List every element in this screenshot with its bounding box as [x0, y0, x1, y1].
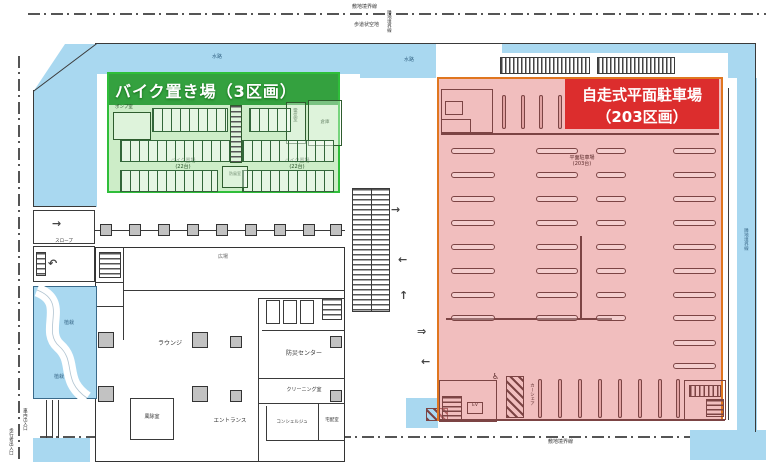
bike-rack — [242, 140, 334, 162]
parking-stall-line — [618, 379, 622, 418]
bike-rack — [120, 170, 218, 192]
traffic-arrow-icon: → — [391, 204, 400, 215]
pump-room-label: ポンプ室 — [115, 105, 133, 110]
parking-stall-bar — [536, 244, 578, 250]
parking-stall-bar — [536, 172, 578, 178]
parking-stall-bar — [536, 292, 578, 298]
bike-rack — [249, 108, 291, 132]
parking-stall-line — [521, 95, 525, 129]
parking-stall-bar — [673, 363, 716, 369]
traffic-arrow-icon: ← — [421, 356, 430, 367]
flat-parking-zone: 自走式平面駐車場 （203区画） 平面駐車場 (203台) EV カーシェア ♿ — [437, 77, 723, 421]
bike-zone-label: バイク置き場（3区画） — [115, 78, 297, 102]
parking-center-label: 平面駐車場 (203台) — [549, 155, 615, 167]
parking-wall — [441, 133, 719, 135]
parking-stall-bar — [673, 172, 716, 178]
parking-stall-bar — [673, 244, 716, 250]
bike-rack — [152, 108, 228, 132]
parking-stall-bar — [673, 220, 716, 226]
parking-stall-line — [638, 379, 642, 418]
parking-stall-bar — [536, 148, 578, 154]
stair-core — [230, 105, 242, 163]
parking-stall-bar — [596, 196, 626, 202]
parking-stall-bar — [536, 268, 578, 274]
parking-stall-bar — [536, 220, 578, 226]
parking-stall-bar — [673, 148, 716, 154]
bike-parking-zone: バイク置き場（3区画） ポンプ室 電気室 倉庫 バイク置場 (22台) バイク置… — [107, 72, 340, 193]
parking-stall-bar — [596, 292, 626, 298]
stairs — [706, 399, 724, 417]
parking-stall-bar — [451, 292, 495, 298]
carshare-label: カーシェア — [529, 383, 534, 406]
ev-box — [467, 402, 483, 414]
parking-stall-bar — [451, 268, 495, 274]
parking-stall-line — [578, 379, 582, 418]
traffic-arrow-icon: ← — [398, 254, 407, 265]
parking-stall-line — [502, 95, 506, 129]
parking-stall-bar — [451, 172, 495, 178]
parking-stall-bar — [596, 220, 626, 226]
parking-stall-bar — [451, 196, 495, 202]
site-plan: バイク置き場（3区画） ポンプ室 電気室 倉庫 バイク置場 (22台) バイク置… — [0, 0, 768, 462]
stairs — [442, 396, 462, 420]
parking-stall-bar — [673, 315, 716, 321]
parking-stall-line — [598, 379, 602, 418]
parking-wall — [580, 236, 582, 318]
parking-stall-line — [558, 95, 562, 129]
parking-stall-bar — [673, 268, 716, 274]
parking-stall-bar — [451, 220, 495, 226]
parking-zone-label-line1: 自走式平面駐車場 — [565, 85, 719, 107]
stairs — [689, 385, 721, 397]
parking-stall-line — [558, 379, 562, 418]
parking-stall-line — [539, 95, 543, 129]
parking-stall-line — [658, 379, 662, 418]
parking-stall-bar — [451, 315, 495, 321]
parking-wall — [439, 419, 725, 421]
bike-rack — [120, 140, 230, 162]
parking-stall-line — [538, 379, 542, 418]
parking-stall-bar — [673, 292, 716, 298]
bike-rack — [242, 170, 334, 192]
parking-stall-bar — [536, 315, 578, 321]
parking-stall-bar — [673, 196, 716, 202]
traffic-arrow-icon: ⇒ — [417, 326, 426, 337]
traffic-arrow-icon: → — [52, 218, 61, 229]
traffic-arrow-icon: ↶ — [48, 258, 57, 269]
parking-stall-line — [676, 379, 680, 418]
parking-stall-bar — [596, 268, 626, 274]
parking-stall-bar — [596, 172, 626, 178]
traffic-arrow-icon: ↑ — [399, 290, 408, 301]
parking-stall-bar — [536, 196, 578, 202]
hatched-area — [506, 376, 524, 418]
vestibule — [222, 166, 248, 188]
parking-room — [445, 101, 463, 115]
parking-stall-bar — [596, 148, 626, 154]
parking-stall-bar — [596, 244, 626, 250]
parking-stall-bar — [596, 315, 626, 321]
parking-room — [441, 119, 471, 133]
parking-stall-bar — [451, 148, 495, 154]
parking-zone-label: 自走式平面駐車場 （203区画） — [565, 79, 719, 129]
parking-stall-bar — [451, 244, 495, 250]
pump-room — [113, 112, 151, 140]
parking-zone-label-line2: （203区画） — [565, 107, 719, 129]
parking-stall-bar — [673, 340, 716, 346]
